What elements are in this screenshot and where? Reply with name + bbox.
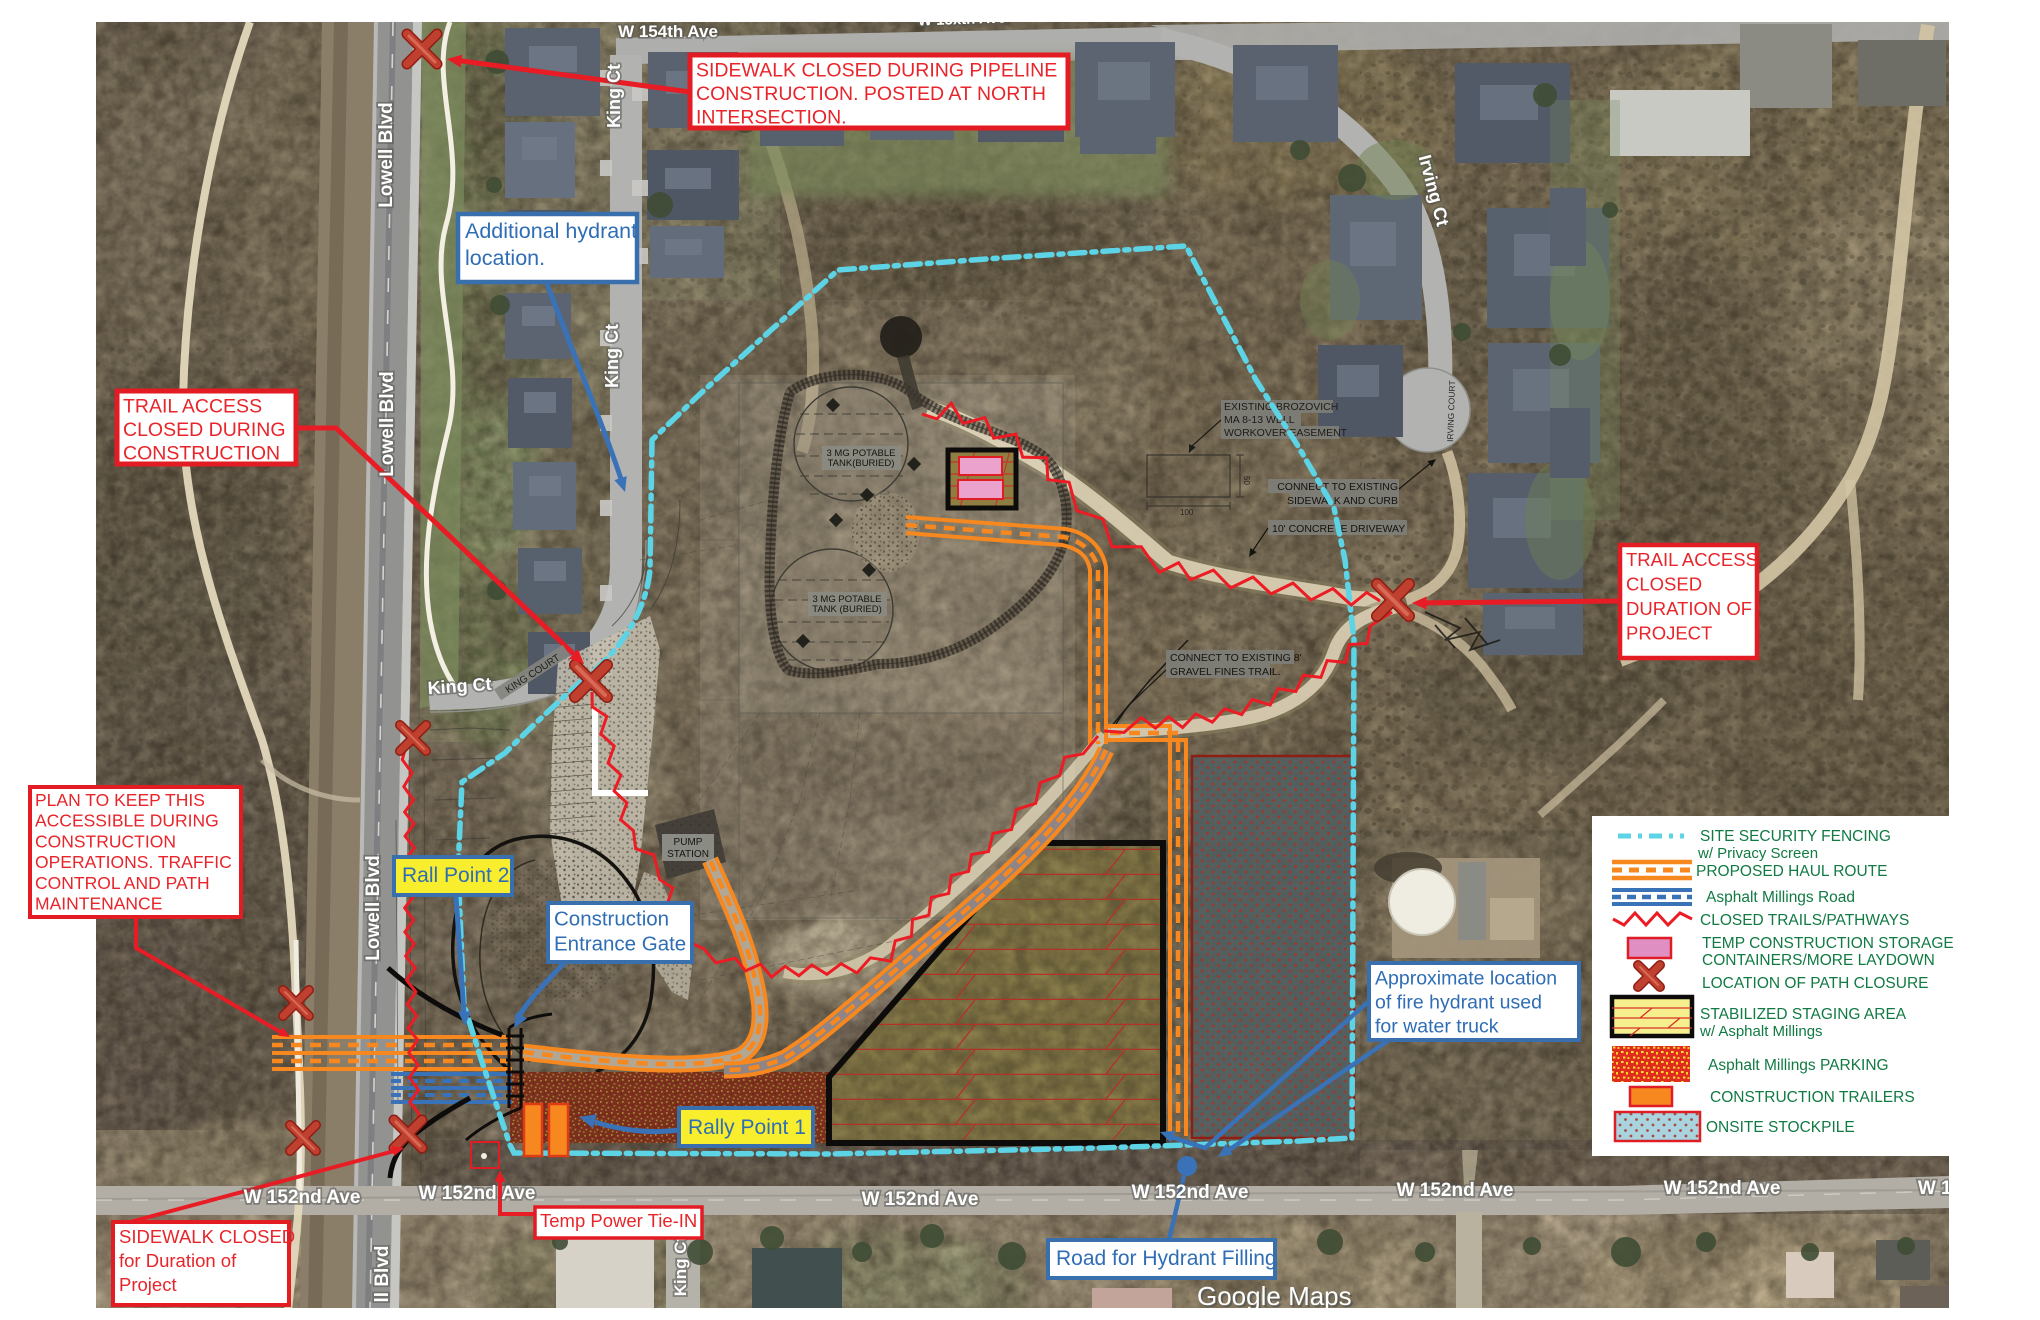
svg-text:for Duration of: for Duration of [119,1250,237,1271]
svg-text:Project: Project [119,1274,177,1295]
svg-text:W 152nd Ave: W 152nd Ave [1664,1178,1781,1199]
svg-text:PROPOSED HAUL ROUTE: PROPOSED HAUL ROUTE [1696,863,1888,880]
svg-text:DURATION OF: DURATION OF [1626,598,1752,619]
svg-text:ACCESSIBLE DURING: ACCESSIBLE DURING [35,811,219,831]
svg-text:W 152nd Ave: W 152nd Ave [419,1183,536,1204]
svg-text:Asphalt Millings Road: Asphalt Millings Road [1706,889,1855,906]
svg-text:TANK(BURIED): TANK(BURIED) [828,458,895,469]
svg-text:Asphalt Millings PARKING: Asphalt Millings PARKING [1708,1057,1889,1074]
svg-text:w/ Privacy Screen: w/ Privacy Screen [1697,845,1818,862]
svg-text:PUMP: PUMP [674,837,703,848]
svg-text:CONSTRUCTION: CONSTRUCTION [35,831,176,851]
svg-text:Lowell Blvd: Lowell Blvd [376,102,397,208]
svg-text:Construction: Construction [554,907,669,930]
svg-text:ONSITE STOCKPILE: ONSITE STOCKPILE [1706,1119,1855,1136]
svg-text:OPERATIONS. TRAFFIC: OPERATIONS. TRAFFIC [35,852,232,872]
svg-text:Additional hydrant: Additional hydrant [465,219,637,243]
svg-text:Road for Hydrant Filling: Road for Hydrant Filling [1056,1247,1277,1270]
svg-text:INTERSECTION.: INTERSECTION. [696,107,847,129]
svg-text:TRAIL ACCESS: TRAIL ACCESS [1626,549,1758,570]
svg-text:W 154th Ave: W 154th Ave [618,22,718,41]
svg-text:TEMP CONSTRUCTION STORAGE: TEMP CONSTRUCTION STORAGE [1702,935,1954,952]
svg-text:100: 100 [1180,508,1194,517]
svg-text:King Ct: King Ct [604,64,624,128]
svg-text:EXISTING BROZOVICH: EXISTING BROZOVICH [1224,401,1338,413]
svg-text:TANK (BURIED): TANK (BURIED) [812,604,882,615]
svg-text:STATION: STATION [667,849,709,860]
svg-text:of fire hydrant used: of fire hydrant used [1375,992,1542,1014]
svg-text:PLAN TO KEEP THIS: PLAN TO KEEP THIS [35,790,205,810]
svg-text:CLOSED: CLOSED [1626,573,1702,594]
svg-text:50: 50 [1242,476,1251,485]
svg-text:CONTAINERS/MORE LAYDOWN: CONTAINERS/MORE LAYDOWN [1702,952,1935,969]
svg-text:LOCATION OF PATH CLOSURE: LOCATION OF PATH CLOSURE [1702,975,1929,992]
svg-text:STABILIZED STAGING AREA: STABILIZED STAGING AREA [1700,1006,1907,1023]
svg-text:ll Blvd: ll Blvd [372,1245,393,1302]
svg-text:Temp Power Tie-IN: Temp Power Tie-IN [540,1210,697,1231]
svg-text:Approximate location: Approximate location [1375,968,1557,990]
svg-text:MAINTENANCE: MAINTENANCE [35,894,162,914]
svg-text:W 152nd Ave: W 152nd Ave [862,1189,979,1210]
svg-text:SIDEWALK AND CURB: SIDEWALK AND CURB [1287,495,1398,507]
svg-text:Lowell Blvd: Lowell Blvd [363,855,384,961]
svg-text:CONNECT TO EXISTING 8': CONNECT TO EXISTING 8' [1170,652,1302,664]
svg-text:SITE SECURITY FENCING: SITE SECURITY FENCING [1700,828,1891,845]
svg-text:SIDEWALK CLOSED DURING PIPELIN: SIDEWALK CLOSED DURING PIPELINE [696,60,1057,82]
svg-text:CLOSED TRAILS/PATHWAYS: CLOSED TRAILS/PATHWAYS [1700,912,1909,929]
svg-text:Lowell Blvd: Lowell Blvd [377,371,398,477]
svg-text:King Ct: King Ct [602,324,622,388]
svg-text:W 152nd Ave: W 152nd Ave [1132,1182,1249,1203]
svg-text:W 152nd Ave: W 152nd Ave [244,1187,361,1208]
svg-text:Entrance Gate: Entrance Gate [554,932,686,955]
svg-text:CONSTRUCTION. POSTED AT NORTH: CONSTRUCTION. POSTED AT NORTH [696,83,1046,105]
svg-text:CONTROL AND PATH: CONTROL AND PATH [35,873,210,893]
svg-text:W 152nd Ave: W 152nd Ave [1397,1180,1514,1201]
svg-text:SIDEWALK CLOSED: SIDEWALK CLOSED [119,1226,295,1247]
svg-text:Rally Point 1: Rally Point 1 [688,1116,806,1139]
svg-text:CONSTRUCTION TRAILERS: CONSTRUCTION TRAILERS [1710,1089,1915,1106]
svg-text:GRAVEL FINES TRAIL.: GRAVEL FINES TRAIL. [1170,666,1281,678]
svg-text:CONSTRUCTION: CONSTRUCTION [123,443,280,465]
svg-text:TRAIL ACCESS: TRAIL ACCESS [123,396,262,418]
svg-text:Google Maps: Google Maps [1197,1281,1352,1311]
svg-text:CONNECT TO EXISTING: CONNECT TO EXISTING [1277,481,1398,493]
svg-text:Rall Point 2: Rall Point 2 [402,864,509,887]
svg-text:for water truck: for water truck [1375,1016,1499,1038]
svg-text:location.: location. [465,246,545,270]
svg-text:PROJECT: PROJECT [1626,622,1712,643]
svg-text:w/ Asphalt Millings: w/ Asphalt Millings [1699,1023,1823,1040]
svg-text:CLOSED DURING: CLOSED DURING [123,419,286,441]
svg-text:King Ct: King Ct [671,1235,690,1296]
